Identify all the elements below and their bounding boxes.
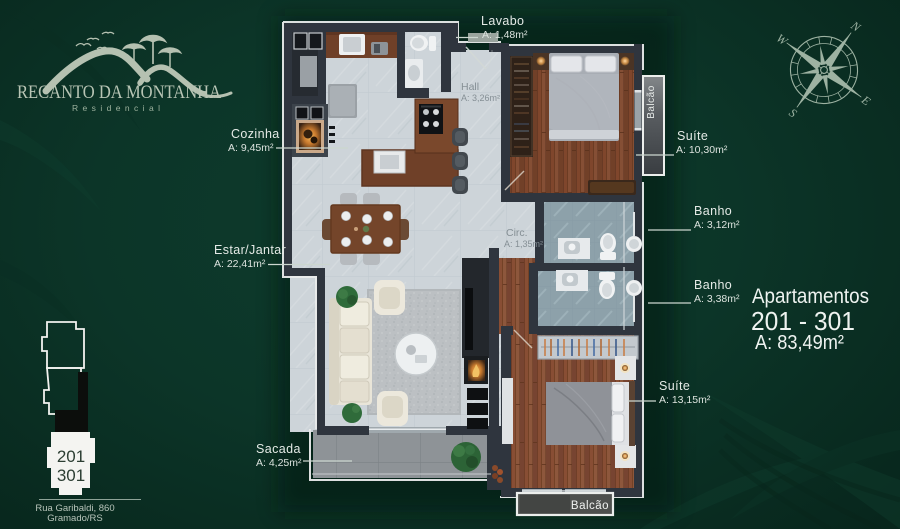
svg-text:A: 3,12m²: A: 3,12m²: [694, 219, 740, 231]
svg-text:Circ.: Circ.: [506, 227, 528, 239]
svg-text:E: E: [858, 92, 874, 109]
svg-text:Banho: Banho: [694, 278, 732, 292]
svg-text:Balcão: Balcão: [571, 500, 609, 512]
svg-text:A: 83,49m²: A: 83,49m²: [755, 332, 844, 354]
svg-text:Cozinha: Cozinha: [231, 127, 280, 141]
svg-text:Sacada: Sacada: [256, 442, 301, 456]
svg-text:301: 301: [57, 466, 85, 485]
svg-text:201: 201: [57, 447, 85, 466]
svg-text:Suíte: Suíte: [659, 379, 690, 393]
svg-text:N: N: [848, 18, 864, 35]
svg-text:A: 9,45m²: A: 9,45m²: [228, 142, 274, 154]
svg-text:W: W: [774, 31, 791, 49]
svg-text:RECANTO DA MONTANHA: RECANTO DA MONTANHA: [17, 82, 221, 103]
svg-text:Apartamentos: Apartamentos: [752, 285, 869, 308]
svg-text:Lavabo: Lavabo: [481, 14, 524, 28]
svg-text:Hall: Hall: [461, 81, 479, 93]
svg-text:Gramado/RS: Gramado/RS: [47, 513, 102, 524]
svg-text:A: 13,15m²: A: 13,15m²: [659, 394, 711, 406]
svg-text:A: 3,38m²: A: 3,38m²: [694, 293, 740, 305]
svg-text:Suíte: Suíte: [677, 129, 708, 143]
svg-text:S: S: [786, 105, 799, 120]
svg-text:Balcão: Balcão: [646, 85, 657, 119]
svg-text:A: 10,30m²: A: 10,30m²: [676, 144, 728, 156]
svg-text:A: 22,41m²: A: 22,41m²: [214, 258, 266, 270]
svg-text:Banho: Banho: [694, 204, 732, 218]
svg-text:A: 4,25m²: A: 4,25m²: [256, 457, 302, 469]
svg-text:A: 1,48m²: A: 1,48m²: [482, 29, 528, 41]
svg-text:Residencial: Residencial: [72, 103, 164, 113]
svg-text:A: 1,35m²: A: 1,35m²: [504, 239, 543, 249]
svg-text:A: 3,26m²: A: 3,26m²: [461, 93, 500, 103]
svg-text:Estar/Jantar: Estar/Jantar: [214, 243, 286, 257]
